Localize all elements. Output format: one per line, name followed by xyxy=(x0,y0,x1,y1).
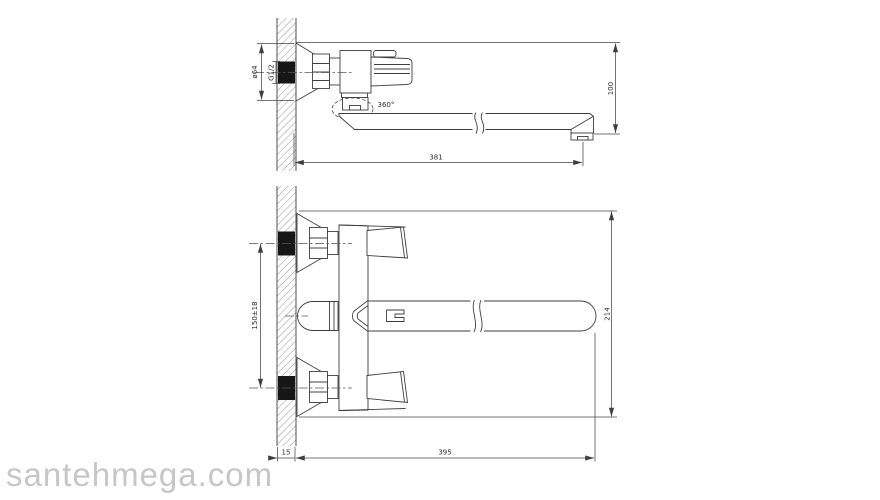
watermark: santehmega.com xyxy=(6,456,273,494)
lever-handle-side xyxy=(371,57,412,86)
dim-label-height: 214 xyxy=(604,307,612,321)
spout-side xyxy=(339,112,594,141)
dim-spout-height: 100 xyxy=(594,44,620,135)
spout-front xyxy=(353,300,597,333)
mixer-body-side xyxy=(340,51,412,111)
dim-label-height: 100 xyxy=(607,82,615,95)
dim-spout-reach: 381 xyxy=(294,133,583,166)
faucet-technical-drawing: 360° ø64 G1/2 100 xyxy=(0,0,880,500)
dim-connection-spacing: 150±18 xyxy=(251,244,261,388)
swivel-rotation-label: 360° xyxy=(378,101,395,109)
handle-button xyxy=(374,51,397,58)
connection-bottom xyxy=(297,358,338,417)
front-view: 150±18 214 15 395 xyxy=(249,186,617,462)
dim-label-wall-thickness: 15 xyxy=(282,449,291,457)
connection-nut-side xyxy=(313,54,341,89)
drawing-canvas: 360° ø64 G1/2 100 xyxy=(0,0,880,500)
wall-section-side xyxy=(277,18,296,171)
dim-label-reach: 381 xyxy=(429,154,442,162)
connection-top xyxy=(297,214,338,273)
dim-label-thread: G1/2 xyxy=(268,64,276,81)
dim-label-spacing: 150±18 xyxy=(251,301,259,329)
dim-overall-height: 214 xyxy=(604,212,612,417)
dim-label-diameter: ø64 xyxy=(251,65,259,79)
dim-label-length: 395 xyxy=(438,449,451,457)
side-view: 360° ø64 G1/2 100 xyxy=(251,18,620,171)
